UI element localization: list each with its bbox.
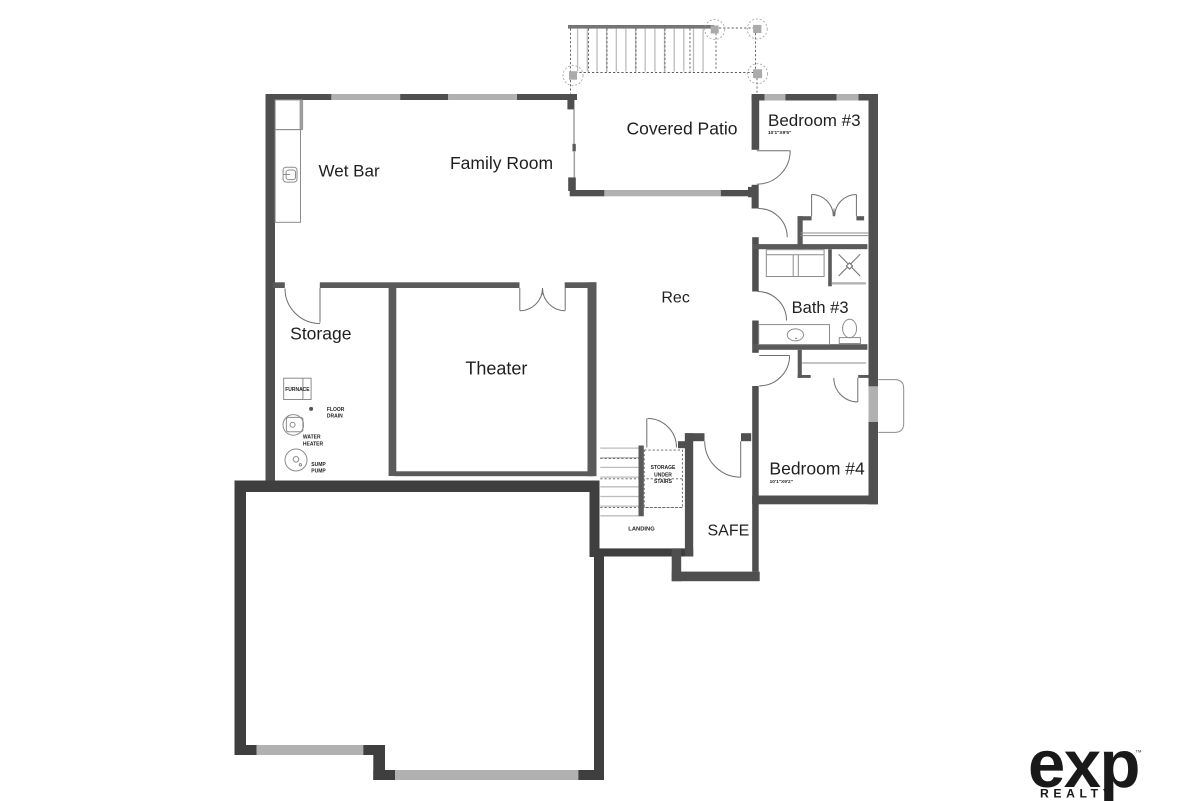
svg-text:SAFE: SAFE	[708, 523, 750, 540]
svg-text:Bedroom #4: Bedroom #4	[769, 459, 865, 479]
svg-text:FURNACE: FURNACE	[285, 387, 310, 393]
svg-text:10'1"X9'2": 10'1"X9'2"	[770, 479, 793, 485]
svg-text:HEATER: HEATER	[303, 442, 324, 448]
svg-text:STORAGE: STORAGE	[651, 465, 676, 471]
svg-text:REALTY: REALTY	[1040, 787, 1115, 801]
svg-text:Bedroom #3: Bedroom #3	[768, 111, 861, 130]
svg-text:PUMP: PUMP	[311, 469, 326, 475]
svg-text:WATER: WATER	[303, 435, 321, 441]
svg-text:Theater: Theater	[465, 359, 527, 379]
svg-text:Bath #3: Bath #3	[792, 299, 849, 317]
svg-text:STAIRS: STAIRS	[654, 479, 673, 485]
svg-text:Rec: Rec	[661, 290, 689, 307]
svg-text:UNDER: UNDER	[654, 472, 672, 478]
svg-text:Covered Patio: Covered Patio	[627, 119, 738, 139]
svg-text:10'1"X9'5": 10'1"X9'5"	[768, 130, 791, 136]
svg-text:Storage: Storage	[290, 324, 351, 344]
svg-text:LANDING: LANDING	[628, 527, 655, 533]
svg-text:TM: TM	[1136, 749, 1142, 754]
svg-text:Wet Bar: Wet Bar	[319, 162, 380, 181]
svg-text:DRAIN: DRAIN	[327, 414, 343, 420]
svg-text:FLOOR: FLOOR	[327, 407, 345, 413]
svg-text:SUMP: SUMP	[311, 462, 326, 468]
svg-text:Family Room: Family Room	[450, 153, 553, 173]
